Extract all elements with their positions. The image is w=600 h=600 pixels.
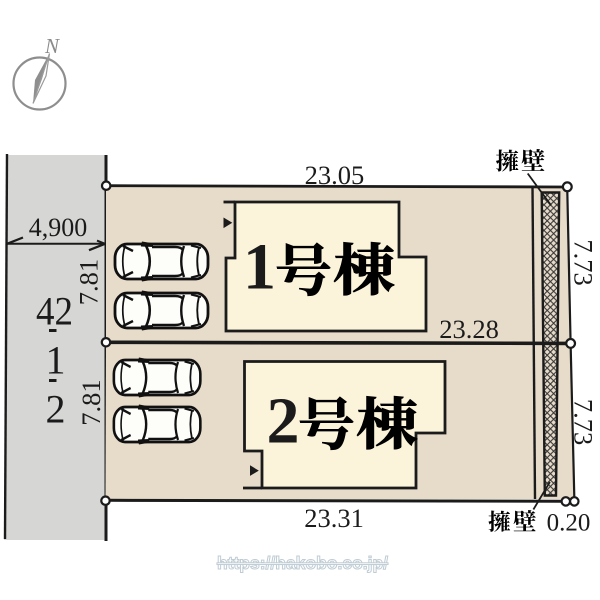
svg-text:7.81: 7.81 bbox=[76, 379, 106, 425]
svg-text:7.73: 7.73 bbox=[569, 399, 599, 445]
svg-text:4,900: 4,900 bbox=[29, 213, 88, 242]
svg-text:https://hakobo.co.jp/: https://hakobo.co.jp/ bbox=[217, 553, 388, 573]
svg-text:23.05: 23.05 bbox=[305, 160, 365, 190]
svg-text:23.28: 23.28 bbox=[439, 314, 499, 344]
svg-text:23.31: 23.31 bbox=[304, 503, 364, 533]
svg-text:0.20: 0.20 bbox=[547, 510, 591, 537]
svg-text:2: 2 bbox=[46, 387, 66, 432]
svg-text:1: 1 bbox=[243, 231, 276, 304]
svg-text:7.81: 7.81 bbox=[74, 259, 104, 305]
svg-text:7.73: 7.73 bbox=[569, 239, 599, 285]
svg-text:N: N bbox=[44, 34, 60, 58]
svg-text:2: 2 bbox=[267, 385, 300, 458]
svg-text:42: 42 bbox=[36, 289, 73, 334]
svg-text:1: 1 bbox=[46, 338, 66, 383]
